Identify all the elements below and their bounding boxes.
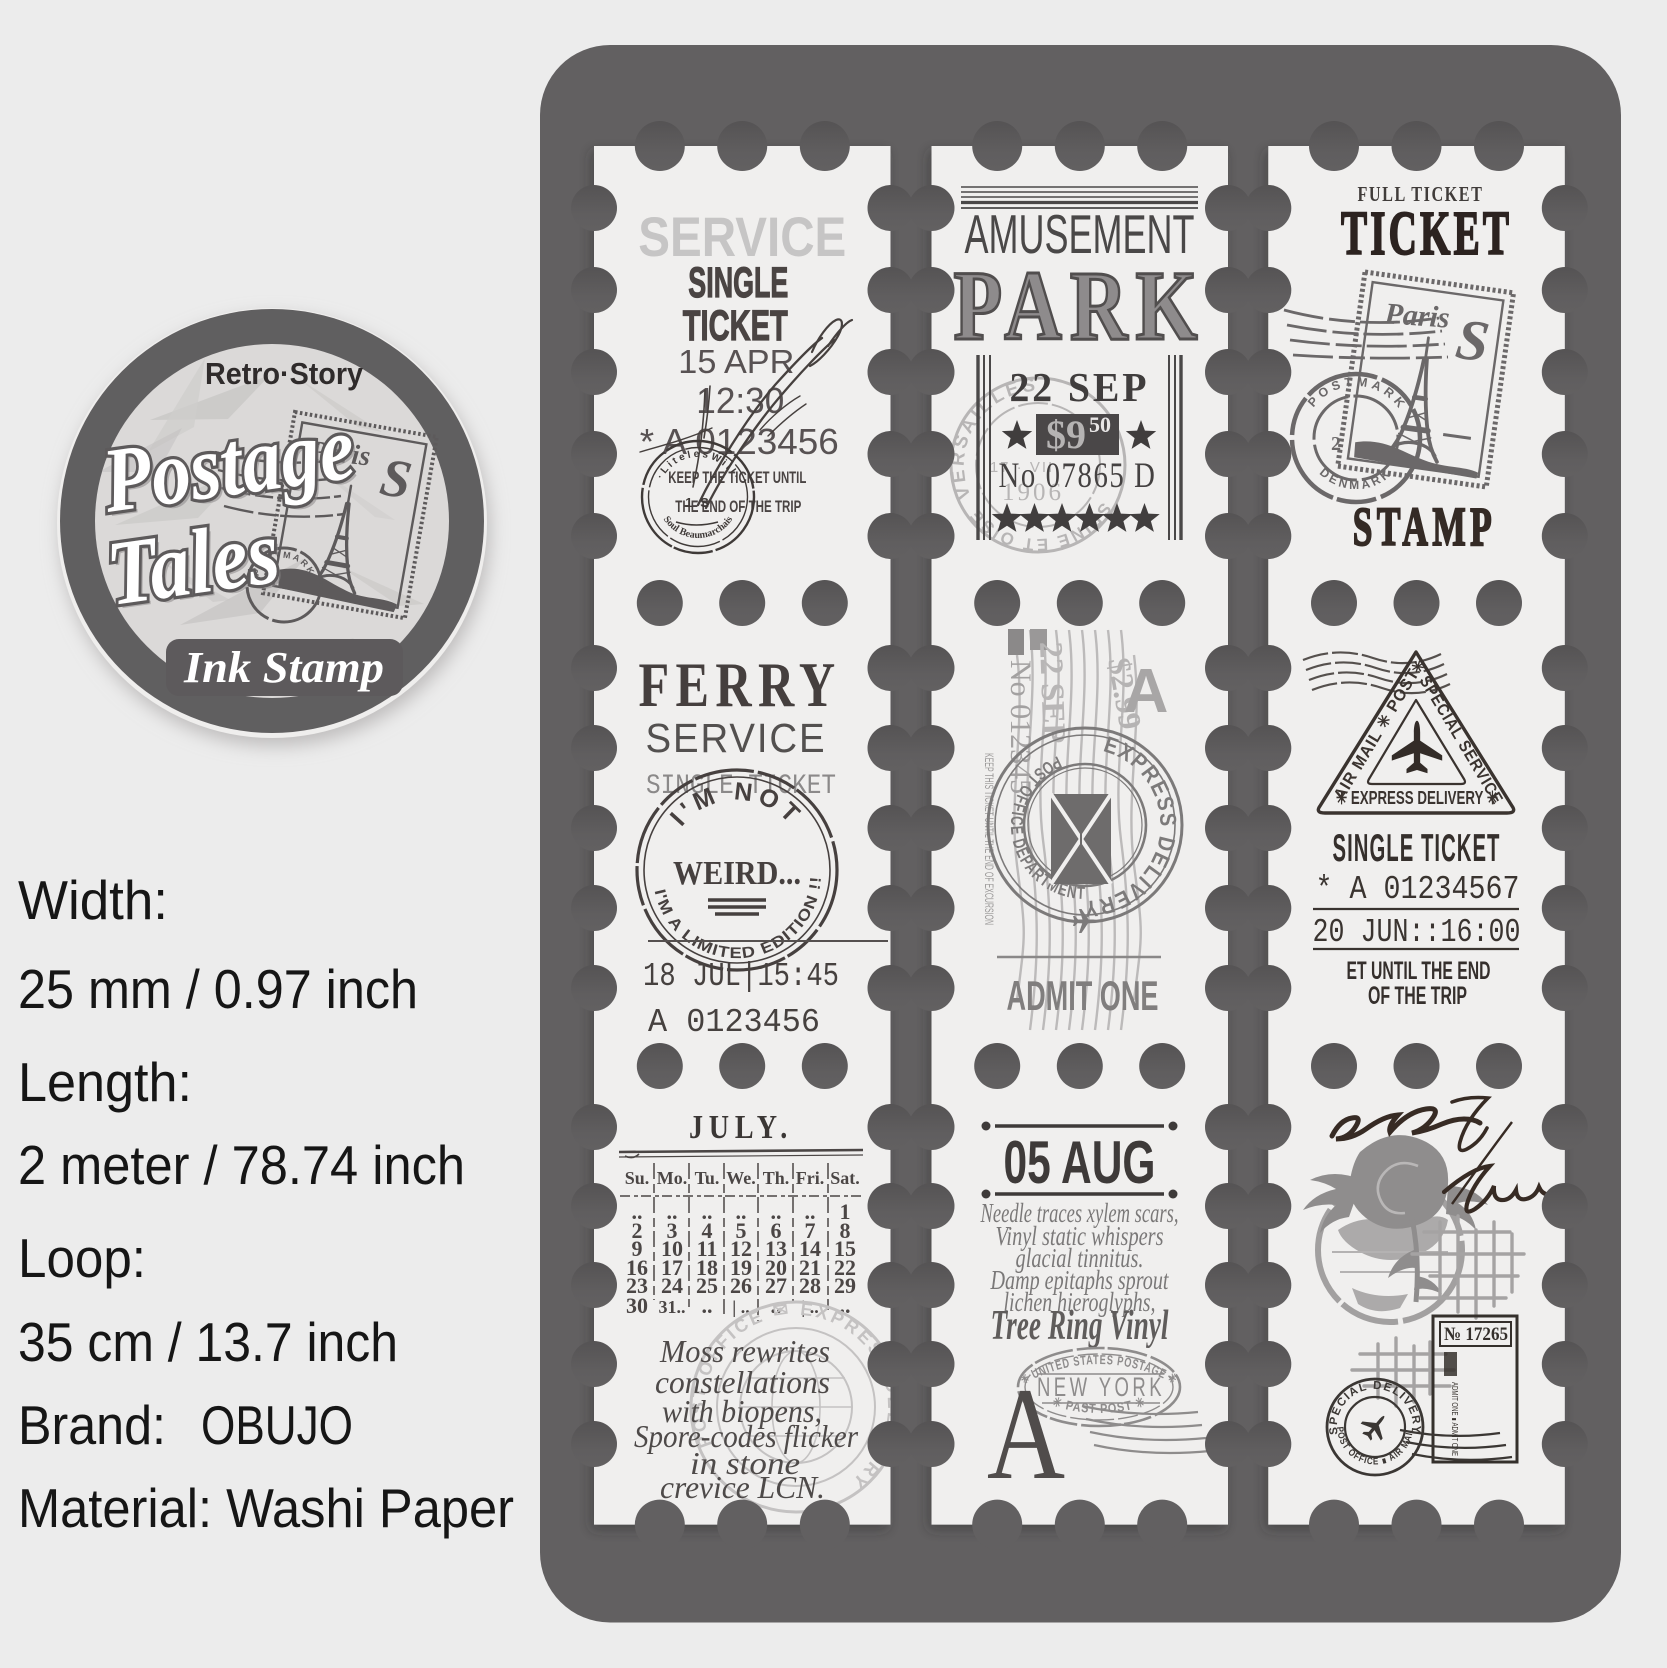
svg-text:SERVICE: SERVICE — [646, 715, 827, 761]
svg-text:SINGLE TICKET: SINGLE TICKET — [1333, 827, 1501, 870]
svg-text:crevice LCN.: crevice LCN. — [660, 1469, 825, 1505]
svg-text:JULY.: JULY. — [689, 1109, 793, 1146]
svg-text:Loop:: Loop: — [18, 1227, 146, 1289]
svg-text:35 cm / 13.7 inch: 35 cm / 13.7 inch — [18, 1311, 398, 1373]
svg-text:25 mm / 0.97 inch: 25 mm / 0.97 inch — [18, 958, 418, 1020]
svg-text:20 JUN::16:00: 20 JUN::16:00 — [1313, 914, 1521, 951]
svg-text:22 SEP: 22 SEP — [1010, 364, 1150, 410]
svg-text:26: 26 — [730, 1273, 752, 1298]
svg-text:28: 28 — [799, 1273, 821, 1298]
svg-text:ET UNTIL THE END: ET UNTIL THE END — [1347, 957, 1491, 985]
svg-text:№ 17265: № 17265 — [1444, 1324, 1508, 1345]
svg-text:24: 24 — [661, 1273, 683, 1298]
svg-text:15 APR: 15 APR — [678, 343, 794, 380]
svg-text:WEIRD...: WEIRD... — [673, 855, 801, 892]
svg-text:STAMP: STAMP — [1353, 497, 1497, 557]
svg-text:A 0123456: A 0123456 — [648, 1004, 820, 1041]
svg-text:Tree Ring Vinyl: Tree Ring Vinyl — [991, 1303, 1169, 1349]
svg-text:Brand:: Brand: — [18, 1394, 166, 1456]
svg-text:Mo.: Mo. — [657, 1168, 688, 1188]
svg-text:Length:: Length: — [18, 1051, 192, 1113]
svg-text:FERRY: FERRY — [639, 650, 842, 720]
svg-text:1 S: 1 S — [685, 495, 711, 510]
svg-text:A: A — [1124, 657, 1169, 726]
svg-text:18 JUL|15:45: 18 JUL|15:45 — [643, 958, 839, 995]
svg-text:Fri.: Fri. — [796, 1168, 825, 1188]
svg-text:We.: We. — [726, 1168, 756, 1188]
svg-text:Sat.: Sat. — [830, 1168, 860, 1188]
svg-text:ADMIT ONE: ADMIT ONE — [1007, 972, 1159, 1019]
svg-text:No 07865 D: No 07865 D — [999, 455, 1157, 495]
svg-text:A: A — [987, 1361, 1065, 1508]
svg-text:Paris: Paris — [1383, 297, 1451, 335]
svg-text:$9: $9 — [1046, 412, 1086, 457]
svg-text:✳ EXPRESS DELIVERY ✳: ✳ EXPRESS DELIVERY ✳ — [1336, 788, 1498, 808]
svg-text:ADMIT ONE ∎ ADMIT ONE: ADMIT ONE ∎ ADMIT ONE — [1450, 1382, 1460, 1456]
svg-text:SINGLE: SINGLE — [688, 259, 788, 307]
svg-text:OBUJO: OBUJO — [201, 1394, 353, 1456]
svg-text:Th.: Th. — [763, 1168, 790, 1188]
svg-text:50: 50 — [1089, 412, 1111, 437]
svg-text:..: .. — [702, 1293, 713, 1318]
svg-text:Width:: Width: — [18, 869, 168, 931]
svg-text:31..: 31.. — [659, 1297, 686, 1317]
svg-text:Su.: Su. — [625, 1168, 650, 1188]
svg-text:* A 01234567: * A 01234567 — [1316, 871, 1520, 908]
svg-text:Tu.: Tu. — [695, 1168, 720, 1188]
svg-text:PARK: PARK — [954, 250, 1206, 361]
svg-text:OF THE TRIP: OF THE TRIP — [1368, 982, 1467, 1010]
svg-text:Ink Stamp: Ink Stamp — [183, 643, 384, 692]
svg-text:Material: Washi Paper: Material: Washi Paper — [18, 1477, 514, 1539]
svg-text:05 AUG: 05 AUG — [1004, 1129, 1156, 1196]
svg-text:2 meter / 78.74 inch: 2 meter / 78.74 inch — [18, 1134, 465, 1196]
svg-text:TICKET: TICKET — [1341, 199, 1512, 268]
svg-text:30: 30 — [626, 1293, 648, 1318]
svg-text:Retro·Story: Retro·Story — [205, 356, 364, 391]
